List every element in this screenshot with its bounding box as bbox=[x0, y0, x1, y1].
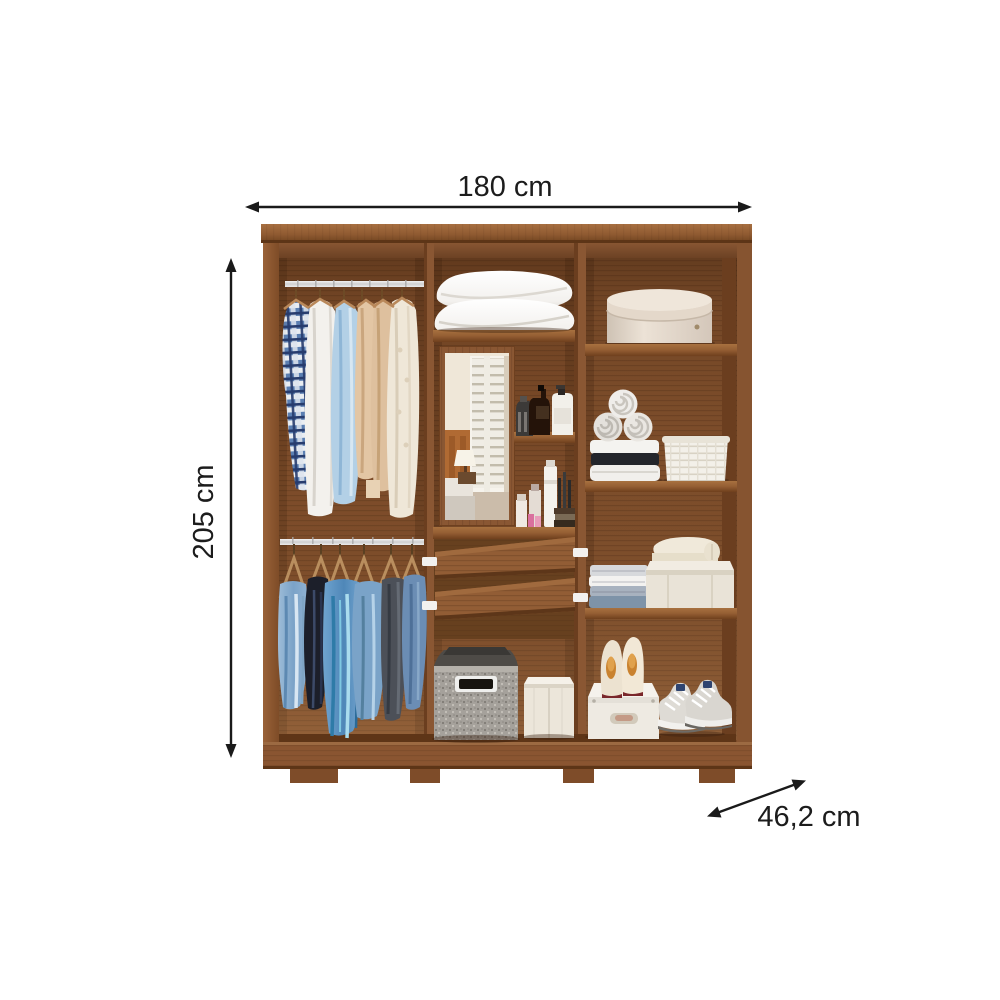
svg-text:46,2 cm: 46,2 cm bbox=[757, 801, 860, 833]
svg-text:205 cm: 205 cm bbox=[188, 464, 220, 559]
svg-text:180 cm: 180 cm bbox=[457, 171, 552, 203]
